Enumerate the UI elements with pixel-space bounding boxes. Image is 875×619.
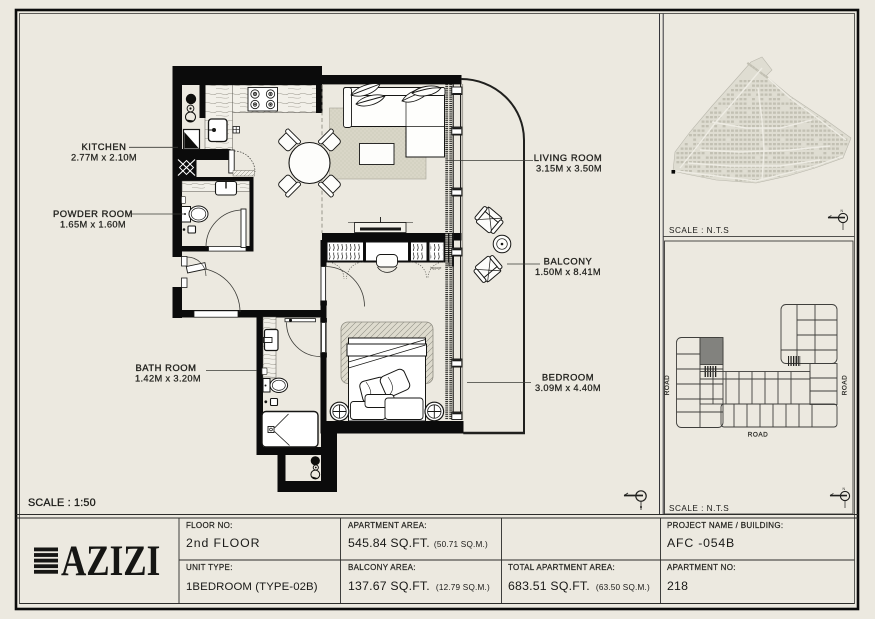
svg-text:ROAD: ROAD xyxy=(842,375,849,395)
svg-text:1BEDROOM (TYPE-02B): 1BEDROOM (TYPE-02B) xyxy=(186,581,318,593)
svg-text:N: N xyxy=(843,487,846,491)
svg-text:LIVING ROOM: LIVING ROOM xyxy=(534,152,603,163)
svg-text:BALCONY AREA:: BALCONY AREA: xyxy=(348,563,416,572)
svg-text:UNIT TYPE:: UNIT TYPE: xyxy=(186,563,233,572)
svg-text:137.67 SQ.FT.(12.79 SQ.M.): 137.67 SQ.FT.(12.79 SQ.M.) xyxy=(348,579,490,593)
svg-text:AFC -054B: AFC -054B xyxy=(667,536,735,550)
svg-text:SCALE : N.T.S: SCALE : N.T.S xyxy=(669,504,729,513)
svg-text:SCALE : N.T.S: SCALE : N.T.S xyxy=(669,226,729,235)
svg-text:PROJECT NAME / BUILDING:: PROJECT NAME / BUILDING: xyxy=(667,521,783,530)
svg-text:N: N xyxy=(841,209,844,213)
svg-text:APARTMENT NO:: APARTMENT NO: xyxy=(667,563,736,572)
svg-text:ROAD: ROAD xyxy=(664,375,671,395)
svg-text:SCALE : 1:50: SCALE : 1:50 xyxy=(28,497,96,509)
svg-text:2nd FLOOR: 2nd FLOOR xyxy=(186,536,260,550)
svg-text:APARTMENT AREA:: APARTMENT AREA: xyxy=(348,521,427,530)
svg-text:683.51 SQ.FT.(63.50 SQ.M.): 683.51 SQ.FT.(63.50 SQ.M.) xyxy=(508,579,650,593)
svg-text:3.09M x 4.40M: 3.09M x 4.40M xyxy=(535,383,601,393)
svg-text:ROAD: ROAD xyxy=(748,432,768,439)
svg-text:2.77M x 2.10M: 2.77M x 2.10M xyxy=(71,153,137,163)
svg-text:FLOOR NO:: FLOOR NO: xyxy=(186,521,233,530)
svg-text:1.50M x 8.41M: 1.50M x 8.41M xyxy=(535,267,601,277)
svg-text:AZIZI: AZIZI xyxy=(61,538,160,585)
svg-text:KITCHEN: KITCHEN xyxy=(82,141,127,152)
svg-text:BATH ROOM: BATH ROOM xyxy=(135,362,196,373)
svg-text:BALCONY: BALCONY xyxy=(544,256,593,267)
svg-text:545.84 SQ.FT.(50.71 SQ.M.): 545.84 SQ.FT.(50.71 SQ.M.) xyxy=(348,536,488,550)
svg-text:TOTAL APARTMENT AREA:: TOTAL APARTMENT AREA: xyxy=(508,563,615,572)
svg-text:1.65M x 1.60M: 1.65M x 1.60M xyxy=(60,220,126,230)
svg-text:POWDER ROOM: POWDER ROOM xyxy=(53,208,133,219)
svg-text:3.15M x 3.50M: 3.15M x 3.50M xyxy=(536,164,602,174)
svg-text:BEDROOM: BEDROOM xyxy=(542,372,594,383)
svg-text:1.42M x 3.20M: 1.42M x 3.20M xyxy=(135,374,201,384)
svg-text:luggage: luggage xyxy=(430,266,442,270)
svg-text:218: 218 xyxy=(667,579,688,593)
